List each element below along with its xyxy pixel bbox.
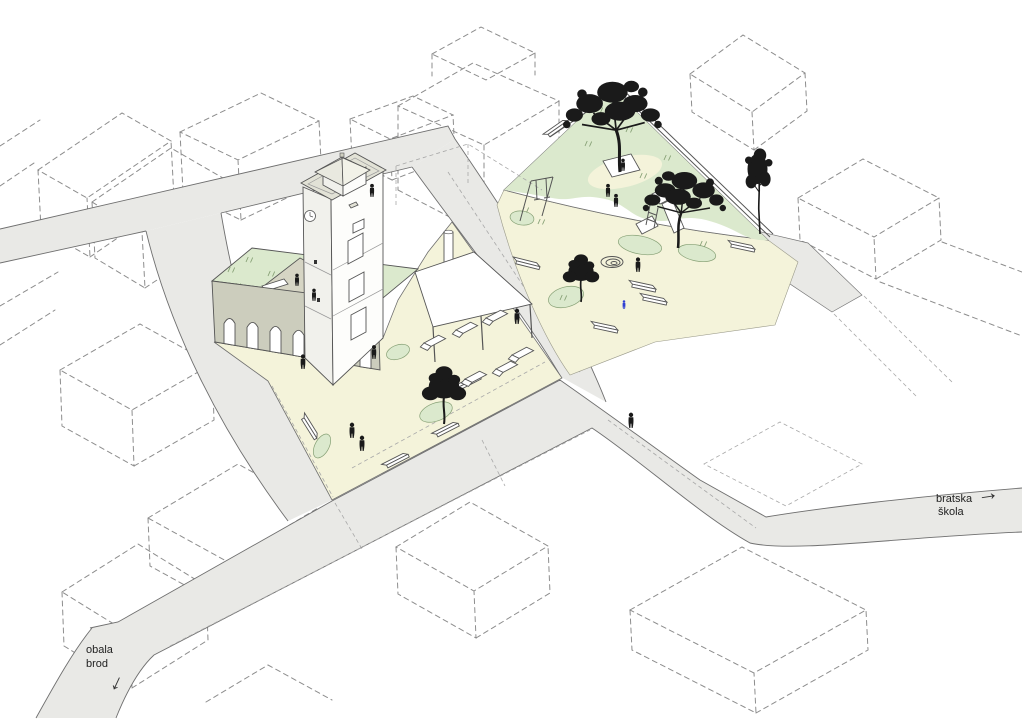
tower-window-small bbox=[314, 260, 317, 264]
arrow-east-icon: → bbox=[975, 479, 1001, 507]
context-building-outline bbox=[0, 272, 58, 345]
street-north bbox=[0, 126, 455, 263]
chimney-top bbox=[444, 230, 453, 234]
context-building-outline bbox=[396, 502, 550, 638]
street-label-southwest-line1: obala bbox=[86, 644, 114, 656]
arcade-arch bbox=[293, 330, 304, 357]
street-main-south bbox=[36, 380, 1022, 718]
context-building-outline bbox=[880, 242, 1022, 336]
tower-window-small bbox=[317, 298, 320, 302]
arcade-arch bbox=[247, 322, 258, 349]
street-label-southwest-line2: brod bbox=[86, 658, 108, 670]
axonometric-site-diagram: bratska škola → obala brod → bbox=[0, 0, 1022, 720]
cupola-finial bbox=[340, 153, 344, 157]
context-building-outline bbox=[630, 547, 868, 713]
context-building-outline bbox=[206, 665, 332, 702]
street-label-east-line2: škola bbox=[938, 506, 965, 518]
context-building-outline bbox=[0, 120, 40, 186]
context-building-outline bbox=[690, 35, 807, 150]
person-figure bbox=[629, 413, 634, 428]
street-label-east-line1: bratska bbox=[936, 493, 973, 505]
site-drawing: bratska škola → obala brod → bbox=[0, 0, 1022, 720]
arcade-arch bbox=[270, 326, 281, 353]
arcade-arch bbox=[224, 319, 235, 346]
context-building-outline bbox=[432, 27, 535, 80]
